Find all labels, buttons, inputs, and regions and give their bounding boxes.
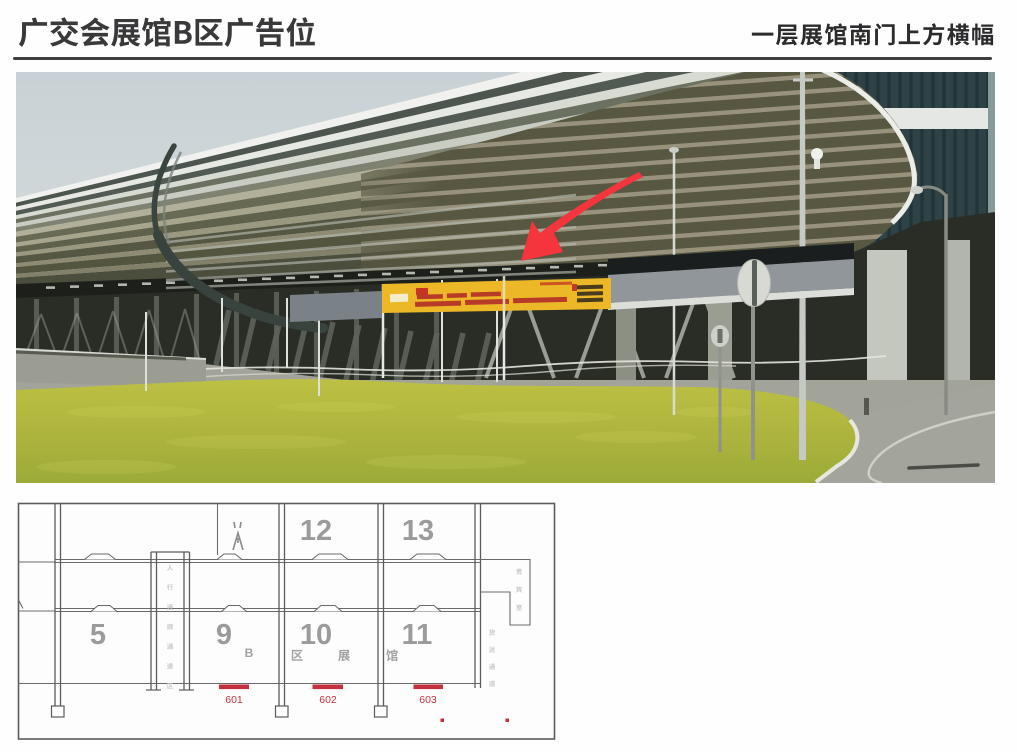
svg-text:5: 5 [90,619,106,651]
svg-text:602: 602 [319,694,337,706]
svg-text:9: 9 [216,619,232,651]
svg-text:B: B [245,646,254,660]
svg-text:13: 13 [402,515,434,547]
svg-text:11: 11 [402,619,433,651]
svg-text:10: 10 [300,619,332,651]
svg-text:601: 601 [225,694,243,706]
svg-text:603: 603 [419,694,437,706]
svg-text:12: 12 [300,515,332,547]
